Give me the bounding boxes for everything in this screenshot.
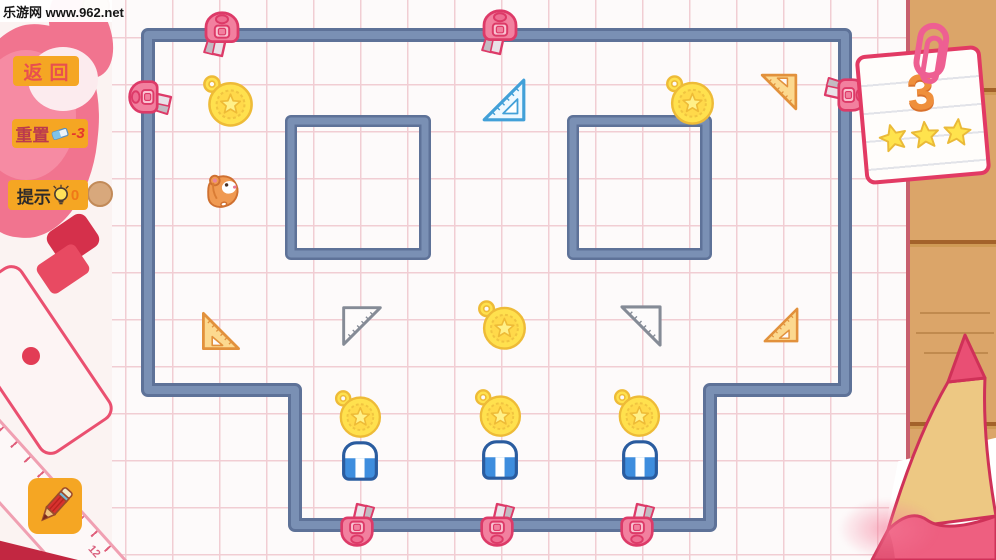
reset-button[interactable]: 重置 -3 [12,119,88,148]
watermark-text: 乐游网 www.962.net [3,2,124,21]
coin[interactable] [473,388,523,438]
sharpener [123,74,172,120]
coin[interactable] [476,299,528,351]
sharpener [334,502,380,551]
plank-seam [910,240,996,244]
coin[interactable] [664,74,716,126]
site-watermark: 乐游网 www.962.net [0,0,112,22]
game-stage: 13 12 3 [0,0,996,560]
sharpener [474,502,520,551]
back-label: 返回 [23,58,75,85]
eraser-icon [50,126,70,141]
gray-triangle-ruler[interactable] [337,301,387,351]
hint-count: 0 [71,187,79,204]
sharpener [476,4,524,55]
hint-button[interactable]: 提示 0 [8,180,88,210]
coin[interactable] [612,388,662,438]
sharpener [614,502,660,551]
bulb-icon [52,184,70,206]
pencil-shadow-decoration [838,498,938,560]
coin[interactable] [201,74,255,128]
reset-count: -3 [71,125,84,142]
wood-knot-decoration [87,181,113,207]
eraser[interactable] [480,438,520,482]
eraser[interactable] [620,438,660,482]
orange-triangle-ruler[interactable] [759,303,803,347]
star-icon [874,119,912,157]
gray-triangle-ruler[interactable] [615,300,667,352]
hamster[interactable] [194,164,249,219]
reset-label: 重置 [15,121,49,146]
orange-triangle-ruler[interactable] [756,69,802,115]
hint-label: 提示 [17,183,51,208]
draw-tool-button[interactable] [28,478,82,534]
coin[interactable] [333,389,383,439]
orange-triangle-ruler[interactable] [197,307,245,355]
blue-triangle-ruler[interactable] [477,73,531,127]
eraser[interactable] [340,439,380,483]
star-icon [940,116,974,150]
wood-grain [920,312,990,314]
star-icon [908,119,942,153]
marker-dot-decoration [22,347,40,365]
sharpener [198,6,246,57]
pencil-icon [33,484,77,528]
ruler-number: 12 [85,543,102,560]
back-button[interactable]: 返回 [13,56,79,86]
